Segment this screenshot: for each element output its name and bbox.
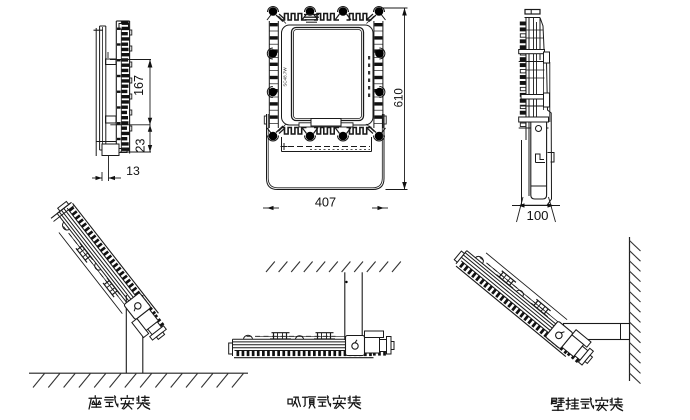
svg-text:407: 407 [315, 195, 336, 210]
svg-text:13: 13 [126, 164, 140, 178]
svg-text:100: 100 [526, 208, 548, 223]
svg-text:23: 23 [134, 139, 148, 153]
svg-text:610: 610 [394, 88, 406, 107]
svg-text:167: 167 [132, 75, 146, 96]
svg-text:SC48.7W: SC48.7W [283, 67, 288, 87]
